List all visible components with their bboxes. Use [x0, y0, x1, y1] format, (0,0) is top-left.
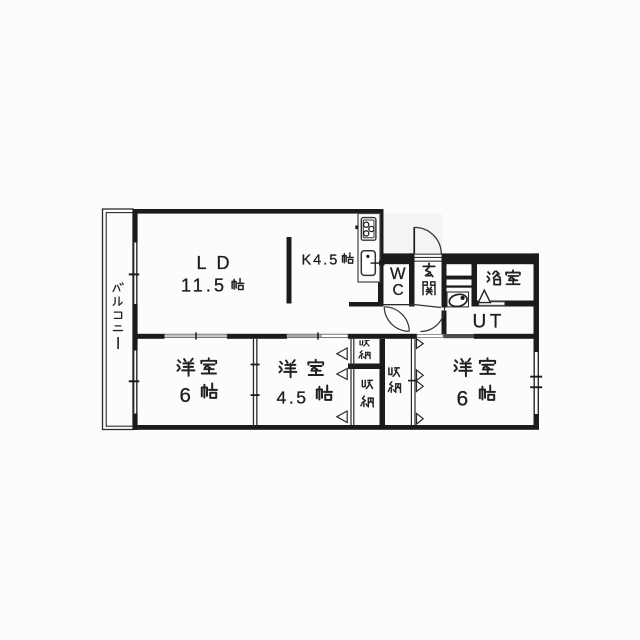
svg-text:D: D: [217, 253, 230, 273]
svg-text:11.5: 11.5: [181, 276, 227, 296]
svg-text:K4.5: K4.5: [302, 253, 340, 269]
svg-text:6: 6: [457, 388, 469, 411]
svg-text:6: 6: [180, 384, 191, 407]
svg-text:C: C: [393, 282, 404, 299]
svg-text:W: W: [390, 265, 406, 283]
svg-text:L: L: [197, 253, 207, 273]
svg-text:4.5: 4.5: [277, 388, 309, 408]
svg-text:U: U: [473, 312, 487, 333]
svg-text:T: T: [490, 312, 502, 333]
